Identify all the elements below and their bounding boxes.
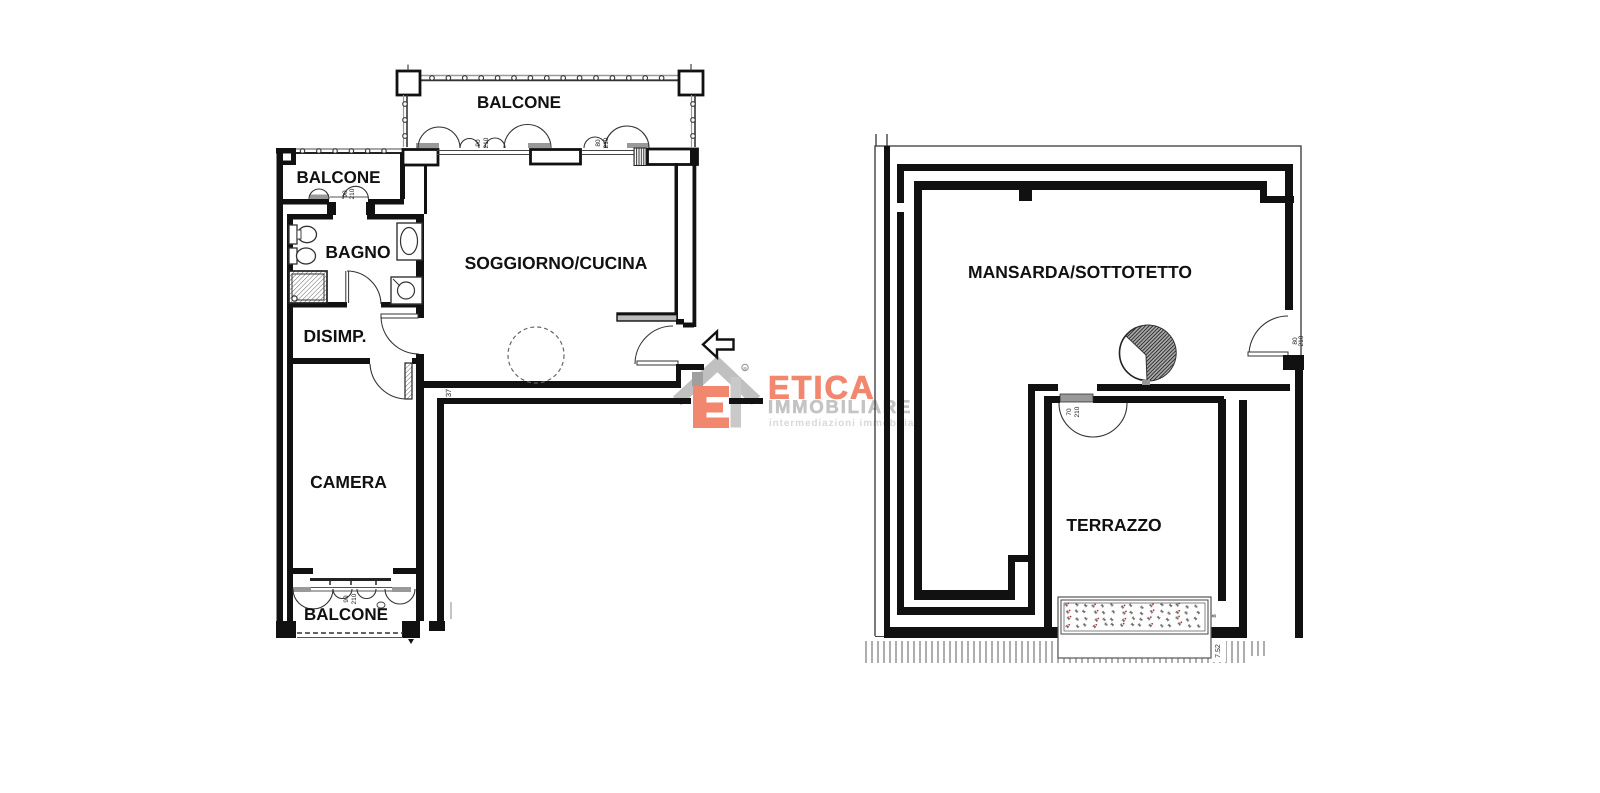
svg-text:BAGNO: BAGNO (325, 242, 390, 262)
svg-text:210: 210 (1298, 335, 1305, 346)
svg-text:BALCONE: BALCONE (296, 168, 380, 187)
svg-text:210: 210 (603, 137, 610, 148)
svg-text:7.52: 7.52 (1215, 644, 1222, 658)
svg-text:80: 80 (595, 139, 602, 147)
svg-text:90: 90 (342, 190, 349, 198)
svg-text:MANSARDA/SOTTOTETTO: MANSARDA/SOTTOTETTO (968, 262, 1192, 282)
svg-text:210: 210 (351, 593, 358, 604)
svg-text:CAMERA: CAMERA (310, 472, 387, 492)
svg-text:210: 210 (483, 137, 490, 148)
svg-text:R: R (743, 366, 747, 372)
svg-text:90: 90 (343, 595, 350, 603)
svg-text:BALCONE: BALCONE (304, 605, 388, 624)
svg-text:90: 90 (475, 139, 482, 147)
svg-text:DISIMP.: DISIMP. (304, 326, 367, 346)
svg-text:IMMOBILIARE: IMMOBILIARE (768, 396, 912, 417)
svg-text:SOGGIORNO/CUCINA: SOGGIORNO/CUCINA (465, 253, 648, 273)
svg-text:210: 210 (349, 188, 356, 199)
svg-text:37: 37 (444, 389, 453, 397)
svg-text:70: 70 (1066, 408, 1073, 416)
svg-text:210: 210 (1074, 406, 1081, 417)
svg-text:BALCONE: BALCONE (477, 93, 561, 112)
svg-text:TERRAZZO: TERRAZZO (1066, 515, 1161, 535)
